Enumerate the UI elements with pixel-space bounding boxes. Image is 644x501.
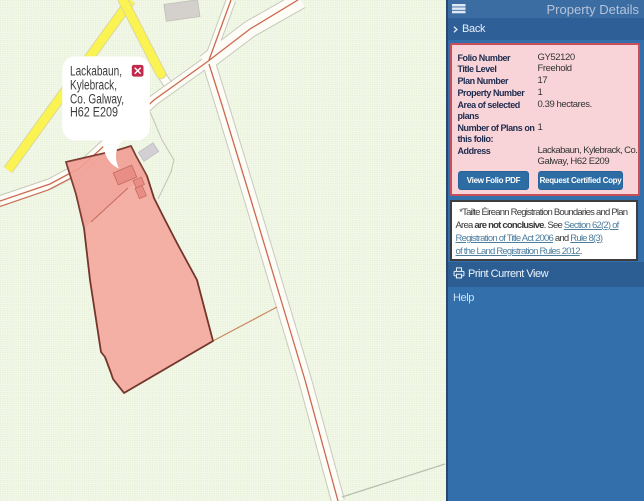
svg-text:H62 E209: H62 E209	[70, 105, 118, 120]
svg-text:Kylebrack,: Kylebrack,	[70, 78, 117, 93]
svg-text:Lackabaun,: Lackabaun,	[70, 64, 122, 79]
